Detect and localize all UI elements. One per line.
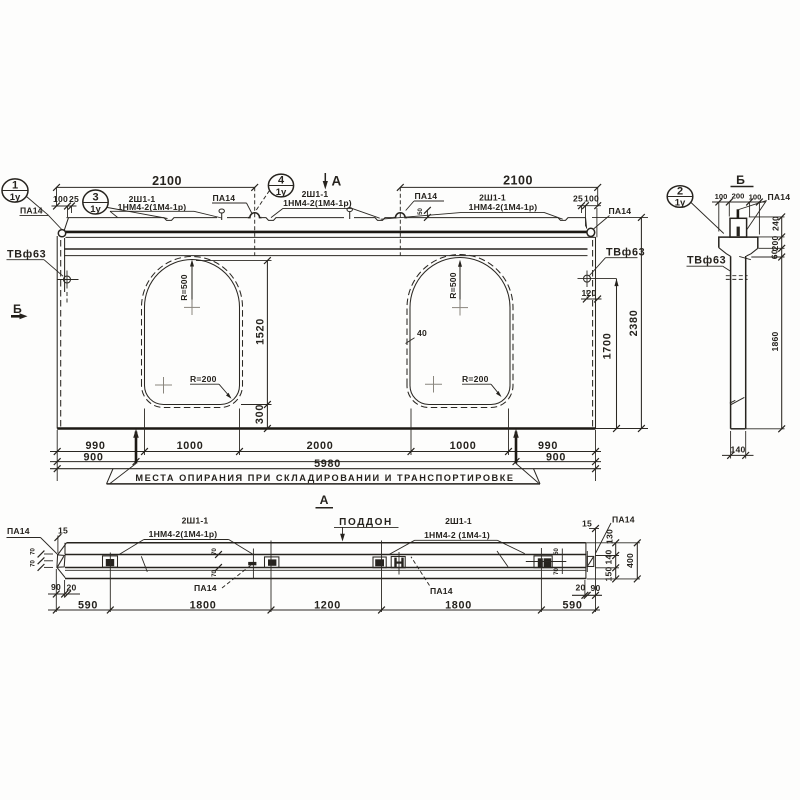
svg-text:60: 60	[769, 249, 779, 259]
svg-text:1у: 1у	[10, 192, 21, 203]
svg-text:2Ш1-1: 2Ш1-1	[445, 516, 472, 526]
svg-text:R=200: R=200	[190, 374, 217, 384]
svg-text:990: 990	[538, 440, 558, 452]
svg-text:ПА14: ПА14	[194, 583, 217, 593]
svg-text:140: 140	[603, 550, 613, 565]
svg-text:1у: 1у	[90, 204, 101, 215]
svg-text:25: 25	[573, 194, 583, 204]
svg-text:200: 200	[770, 236, 780, 251]
svg-text:2: 2	[677, 186, 683, 198]
svg-text:140: 140	[731, 445, 746, 455]
svg-text:50: 50	[554, 548, 560, 555]
svg-text:ПА14: ПА14	[415, 191, 438, 201]
svg-text:400: 400	[625, 553, 635, 568]
svg-text:МЕСТА ОПИРАНИЯ ПРИ СКЛАДИРО: МЕСТА ОПИРАНИЯ ПРИ СКЛАДИРОВАНИИ И ТРАНС…	[135, 473, 514, 483]
svg-text:200: 200	[732, 192, 745, 201]
svg-text:3: 3	[92, 192, 98, 204]
svg-text:ПА14: ПА14	[213, 193, 236, 203]
svg-text:1000: 1000	[177, 440, 204, 452]
svg-text:990: 990	[85, 440, 105, 452]
svg-text:1860: 1860	[770, 332, 780, 352]
svg-text:240: 240	[770, 216, 780, 231]
svg-text:70: 70	[31, 548, 37, 555]
svg-text:130: 130	[604, 529, 614, 544]
svg-text:590: 590	[78, 600, 98, 612]
svg-text:70: 70	[554, 568, 560, 575]
svg-text:900: 900	[546, 451, 566, 463]
svg-text:1200: 1200	[314, 600, 341, 612]
svg-text:1НМ4-2(1М4-1р): 1НМ4-2(1М4-1р)	[118, 202, 187, 212]
svg-text:ПОДДОН: ПОДДОН	[339, 517, 393, 528]
svg-text:1800: 1800	[190, 600, 217, 612]
svg-text:70: 70	[212, 548, 218, 555]
svg-text:20: 20	[576, 583, 586, 593]
svg-text:1000: 1000	[450, 440, 477, 452]
svg-text:1НМ4-2(1М4-1р): 1НМ4-2(1М4-1р)	[149, 529, 218, 539]
svg-text:2100: 2100	[503, 174, 533, 188]
svg-text:2380: 2380	[628, 310, 640, 337]
svg-text:ПА14: ПА14	[612, 515, 635, 525]
svg-text:ТВф63: ТВф63	[606, 247, 645, 259]
svg-text:1НМ4-2 (1М4-1): 1НМ4-2 (1М4-1)	[424, 530, 490, 540]
svg-text:100: 100	[53, 194, 68, 204]
svg-text:70: 70	[31, 560, 37, 567]
svg-text:А: А	[332, 174, 342, 189]
svg-text:100: 100	[749, 193, 762, 202]
svg-text:ПА14: ПА14	[609, 206, 632, 216]
svg-text:ПА14: ПА14	[430, 586, 453, 596]
svg-text:ТВф63: ТВф63	[7, 249, 46, 261]
svg-text:100: 100	[584, 194, 599, 204]
svg-text:1520: 1520	[255, 318, 267, 345]
svg-text:1800: 1800	[445, 600, 472, 612]
svg-text:R=200: R=200	[462, 374, 489, 384]
svg-text:Б: Б	[736, 173, 745, 187]
svg-text:300: 300	[254, 404, 266, 424]
svg-text:590: 590	[562, 600, 582, 612]
svg-text:15: 15	[58, 526, 68, 536]
svg-text:4: 4	[278, 175, 285, 187]
svg-text:R=500: R=500	[448, 272, 458, 299]
svg-text:ПА14: ПА14	[768, 192, 791, 202]
svg-text:1у: 1у	[276, 187, 287, 198]
svg-text:ТВф63: ТВф63	[687, 255, 726, 267]
svg-text:40: 40	[417, 328, 427, 338]
svg-text:1: 1	[12, 180, 18, 192]
svg-text:R=500: R=500	[179, 274, 189, 301]
svg-text:2100: 2100	[152, 174, 182, 188]
svg-text:1у: 1у	[675, 198, 686, 209]
svg-text:150: 150	[603, 567, 613, 582]
svg-text:2Ш1-1: 2Ш1-1	[479, 193, 506, 203]
svg-text:1НМ4-2(1М4-1р): 1НМ4-2(1М4-1р)	[469, 202, 538, 212]
svg-text:1НМ4-2(1М4-1р): 1НМ4-2(1М4-1р)	[283, 198, 352, 208]
svg-text:900: 900	[83, 451, 103, 463]
svg-text:2000: 2000	[307, 440, 334, 452]
svg-text:50: 50	[418, 208, 424, 215]
svg-text:ПА14: ПА14	[7, 526, 30, 536]
svg-text:15: 15	[582, 519, 592, 529]
svg-text:1700: 1700	[601, 333, 613, 360]
svg-text:2Ш1-1: 2Ш1-1	[182, 516, 209, 526]
svg-text:ПА14: ПА14	[20, 206, 43, 216]
svg-text:А: А	[320, 493, 329, 507]
svg-text:90: 90	[591, 583, 601, 593]
